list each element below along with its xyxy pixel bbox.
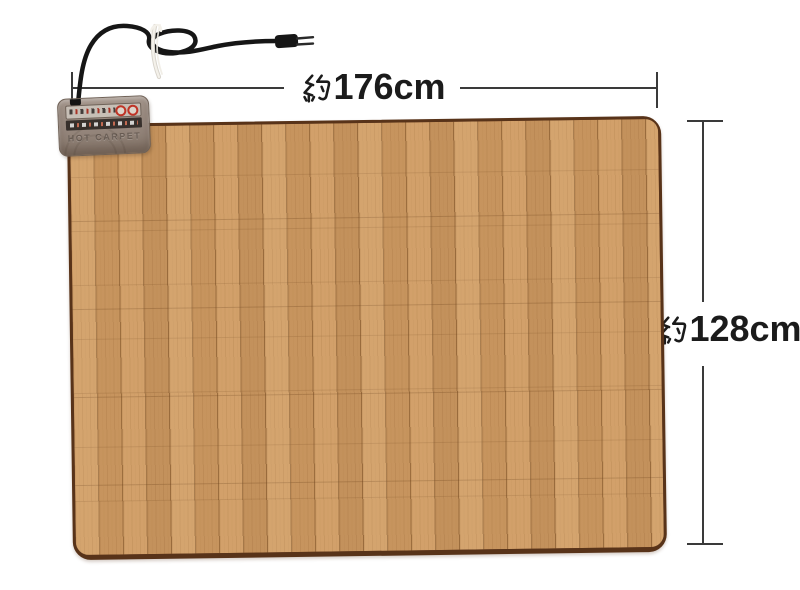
width-dimension-value: 176cm: [333, 66, 445, 108]
wood-grain-surface: [70, 119, 664, 555]
plug-prongs: [297, 37, 313, 44]
carpet: [67, 116, 667, 560]
height-dimension-tick-top: [687, 120, 723, 122]
width-dimension-tick-right: [656, 72, 658, 108]
dial-indicator-icon: [127, 104, 138, 115]
height-dimension-label: 128cm: [655, 305, 800, 353]
height-dimension-line-bottom: [702, 366, 704, 545]
yaku-approx-kanji-glyph: [302, 74, 331, 103]
controller-unit: HOT CARPET: [57, 95, 151, 157]
height-dimension-tick-bottom: [687, 543, 723, 545]
width-dimension-line-right: [460, 87, 657, 89]
product-dimension-scene: 176cm 128cm: [0, 0, 800, 590]
cable-tie: [151, 25, 162, 77]
power-cord: [78, 26, 277, 104]
power-plug: [275, 34, 313, 49]
dial-indicator-icon: [115, 105, 126, 116]
height-dimension-value: 128cm: [689, 308, 800, 350]
panel-markings: [69, 107, 115, 114]
height-dimension-line-top: [702, 121, 704, 302]
width-dimension-label: 176cm: [278, 64, 470, 110]
width-dimension-line-left: [72, 87, 284, 89]
